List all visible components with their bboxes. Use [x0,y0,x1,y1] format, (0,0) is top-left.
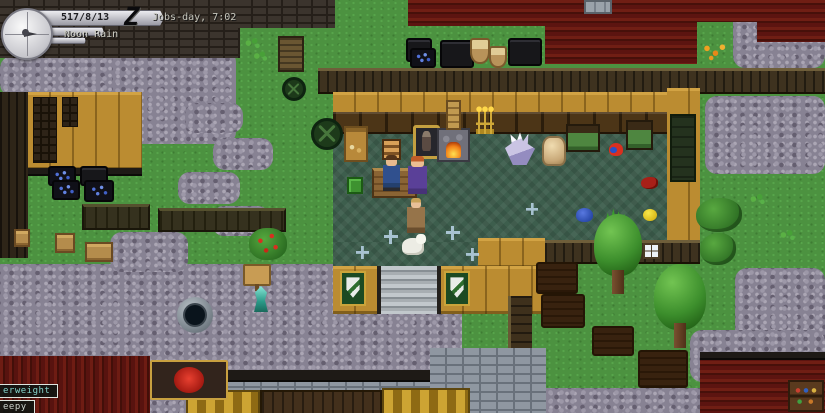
floor-sparkle [526,203,538,215]
cobblestone-patch [705,96,825,174]
berry-bin[interactable] [84,180,114,202]
bush[interactable] [700,233,736,265]
cobblestone-patch [213,138,273,170]
goods-stall[interactable] [344,126,368,162]
wooden-crate[interactable] [55,233,75,253]
crest-banner [340,271,366,306]
dirt-plot [592,326,634,356]
brown-awning [260,390,382,413]
floor-sparkle [466,248,479,261]
stone-well[interactable] [177,297,213,333]
storage-bin[interactable] [508,38,542,66]
lattice-window [33,97,57,163]
bed[interactable] [566,124,600,152]
wood-walkway [278,36,304,72]
green-supply-crate[interactable] [347,177,363,194]
red-roof [757,0,825,42]
goat-animal[interactable] [402,238,424,255]
berry-bush[interactable] [249,228,287,260]
red-roof [408,0,548,26]
hud-date: 517/8/13 [61,12,109,23]
cobblestone-path [545,388,705,413]
dirt-plot [536,262,578,294]
cart-wheel [311,118,343,150]
candelabra [476,108,494,134]
fireplace[interactable] [437,128,470,162]
shopkeeper-npc[interactable] [383,155,400,191]
lemon-item[interactable] [643,209,657,221]
hud-weather-text: Noon Rain [64,29,118,40]
bookshelf[interactable] [788,380,824,412]
armor-stand[interactable] [413,125,440,159]
shop-bottom-wall [478,238,545,268]
cobblestone-patch [178,172,240,204]
oak-tree[interactable] [594,214,642,294]
berry-bin[interactable] [410,48,436,68]
stone-building-roof [238,0,335,28]
robed-woman-npc[interactable] [408,156,427,194]
blue-slime[interactable] [576,208,593,222]
floor-sparkle [356,246,369,259]
cobblestone-patch [185,103,243,133]
crest-banner [444,271,470,306]
red-bird[interactable] [641,177,658,189]
hud-calendar-text: Jobs-day, 7:02 [152,12,236,23]
grass-plant [243,36,261,50]
bed[interactable] [626,120,653,150]
shop-wall-paneling [333,112,667,134]
game-viewport: 517/8/13 Z Jobs-day, 7:02 Noon Rain erwe… [0,0,825,413]
entrance-steps[interactable] [377,266,441,314]
grass-plant [778,228,796,242]
shelf-alcove [670,114,696,182]
roof-edge [700,352,825,360]
roof-edge [228,370,432,382]
cobblestone-patch [0,56,122,96]
wooden-crate[interactable] [85,242,113,262]
floor-sparkle [446,226,460,240]
cobblestone-patch [110,232,188,272]
produce-basket[interactable] [489,46,507,68]
gold-awning [382,388,470,413]
storage-bin[interactable] [440,40,474,68]
parrot[interactable] [609,143,623,156]
bush[interactable] [696,198,742,232]
signpost[interactable] [243,264,271,286]
wooden-fence [318,68,825,94]
dirt-plot [638,350,688,388]
compass-hub-icon [22,29,29,36]
wall-window [643,243,660,259]
status-badge-sleepy[interactable]: eepy [0,400,35,413]
market-table[interactable] [82,204,150,230]
chimney [446,100,461,130]
produce-basket[interactable] [470,38,490,64]
grass-plant [252,50,268,62]
status-badge-overweight[interactable]: erweight [0,384,58,398]
berry-bin[interactable] [52,180,80,200]
child-npc[interactable] [407,198,425,233]
grass-plant [748,192,766,206]
stone-chimney [584,0,612,14]
lattice-window [62,97,78,127]
grain-sack[interactable] [542,136,566,166]
floor-sparkle [384,230,398,244]
oak-tree[interactable] [654,264,706,348]
dirt-plot [541,294,585,328]
flower-patch [700,40,728,64]
cart-wheel [282,77,306,101]
red-roof [545,0,697,64]
wooden-crate[interactable] [14,229,30,247]
shop-signboard[interactable] [150,360,228,400]
